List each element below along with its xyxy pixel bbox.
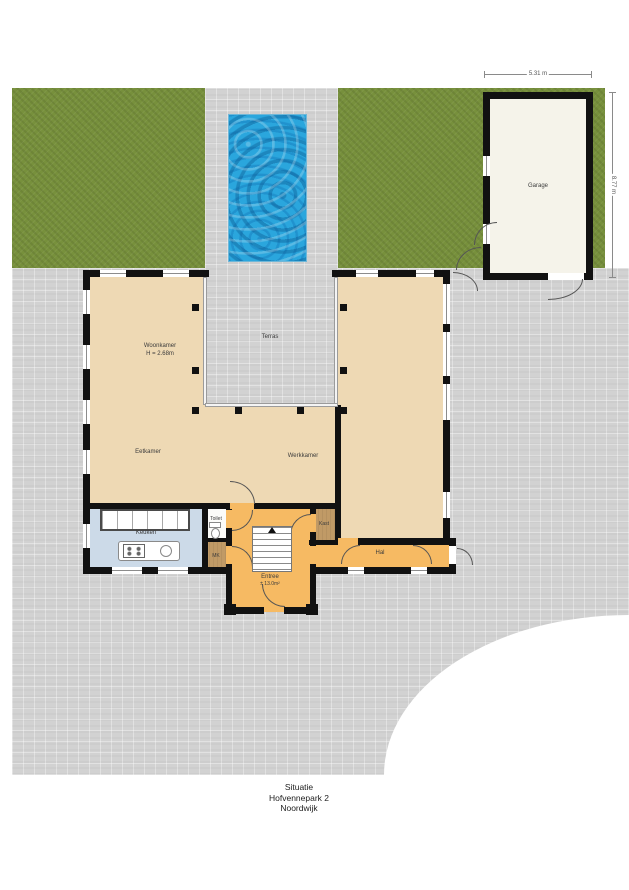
column-dot bbox=[235, 407, 242, 414]
window bbox=[443, 332, 450, 376]
window bbox=[83, 524, 90, 548]
column-dot bbox=[297, 407, 304, 414]
wall bbox=[310, 567, 456, 574]
column-dot bbox=[340, 407, 347, 414]
stove-icon bbox=[123, 544, 145, 558]
entree-area: ± 13.0m² bbox=[260, 581, 280, 587]
dimension-tick bbox=[609, 92, 616, 93]
garage-width-dimension: 5.31 m bbox=[527, 71, 549, 77]
garage-depth-dimension: 8.77 m bbox=[610, 174, 616, 196]
column-dot bbox=[340, 304, 347, 311]
toilet-icon bbox=[211, 528, 220, 539]
plan-caption: Situatie Hofvennepark 2 Noordwijk bbox=[229, 782, 369, 814]
entree-name: Entree bbox=[260, 573, 280, 581]
door-opening bbox=[449, 546, 456, 564]
window bbox=[356, 270, 378, 277]
dimension-tick bbox=[484, 71, 485, 78]
room-right-wing bbox=[338, 274, 449, 543]
window bbox=[411, 567, 427, 574]
swimming-pool bbox=[228, 114, 307, 262]
window bbox=[348, 567, 364, 574]
site-plan: 5.31 m 8.77 m bbox=[0, 0, 629, 890]
column-dot bbox=[192, 304, 199, 311]
window bbox=[83, 345, 90, 369]
terras-label: Terras bbox=[262, 333, 279, 341]
garage-label: Garage bbox=[528, 182, 548, 190]
caption-line-situatie: Situatie bbox=[229, 782, 369, 793]
window bbox=[100, 270, 126, 277]
window bbox=[443, 284, 450, 324]
wall bbox=[335, 405, 341, 543]
garage-window bbox=[483, 156, 490, 176]
meterkast-label: MK bbox=[212, 553, 220, 559]
window bbox=[443, 384, 450, 420]
window bbox=[83, 450, 90, 474]
corner-post bbox=[306, 604, 318, 615]
caption-line-address: Hofvennepark 2 bbox=[229, 793, 369, 804]
dimension-tick bbox=[591, 71, 592, 78]
dimension-tick bbox=[609, 277, 616, 278]
window bbox=[112, 567, 142, 574]
werkkamer-label: Werkkamer bbox=[288, 452, 319, 460]
terrace-glass-wall bbox=[205, 403, 338, 407]
kast-label: Kast bbox=[319, 521, 329, 527]
window bbox=[443, 492, 450, 518]
corner-post bbox=[224, 604, 236, 615]
woonkamer-name: Woonkamer bbox=[144, 342, 176, 350]
window bbox=[83, 400, 90, 424]
sink-icon bbox=[160, 545, 172, 557]
woonkamer-height: H = 2.68m bbox=[144, 350, 176, 358]
stairs-up-arrow bbox=[268, 527, 276, 533]
window bbox=[416, 270, 434, 277]
column-dot bbox=[192, 367, 199, 374]
door-opening bbox=[310, 546, 316, 564]
kitchen-counter bbox=[100, 509, 190, 531]
terrace-glass-wall bbox=[203, 277, 207, 405]
woonkamer-label: Woonkamer H = 2.68m bbox=[144, 342, 176, 358]
door-opening bbox=[338, 538, 358, 545]
window bbox=[163, 270, 189, 277]
window bbox=[158, 567, 188, 574]
terrace-glass-wall bbox=[334, 277, 338, 405]
entree-label: Entree ± 13.0m² bbox=[260, 573, 280, 587]
column-dot bbox=[340, 367, 347, 374]
caption-line-city: Noordwijk bbox=[229, 803, 369, 814]
toilet-label: Toilet bbox=[210, 516, 222, 522]
keuken-label: Keuken bbox=[136, 529, 156, 537]
eetkamer-label: Eetkamer bbox=[135, 448, 161, 456]
window bbox=[83, 290, 90, 314]
hal-label: Hal bbox=[375, 549, 384, 557]
column-dot bbox=[192, 407, 199, 414]
